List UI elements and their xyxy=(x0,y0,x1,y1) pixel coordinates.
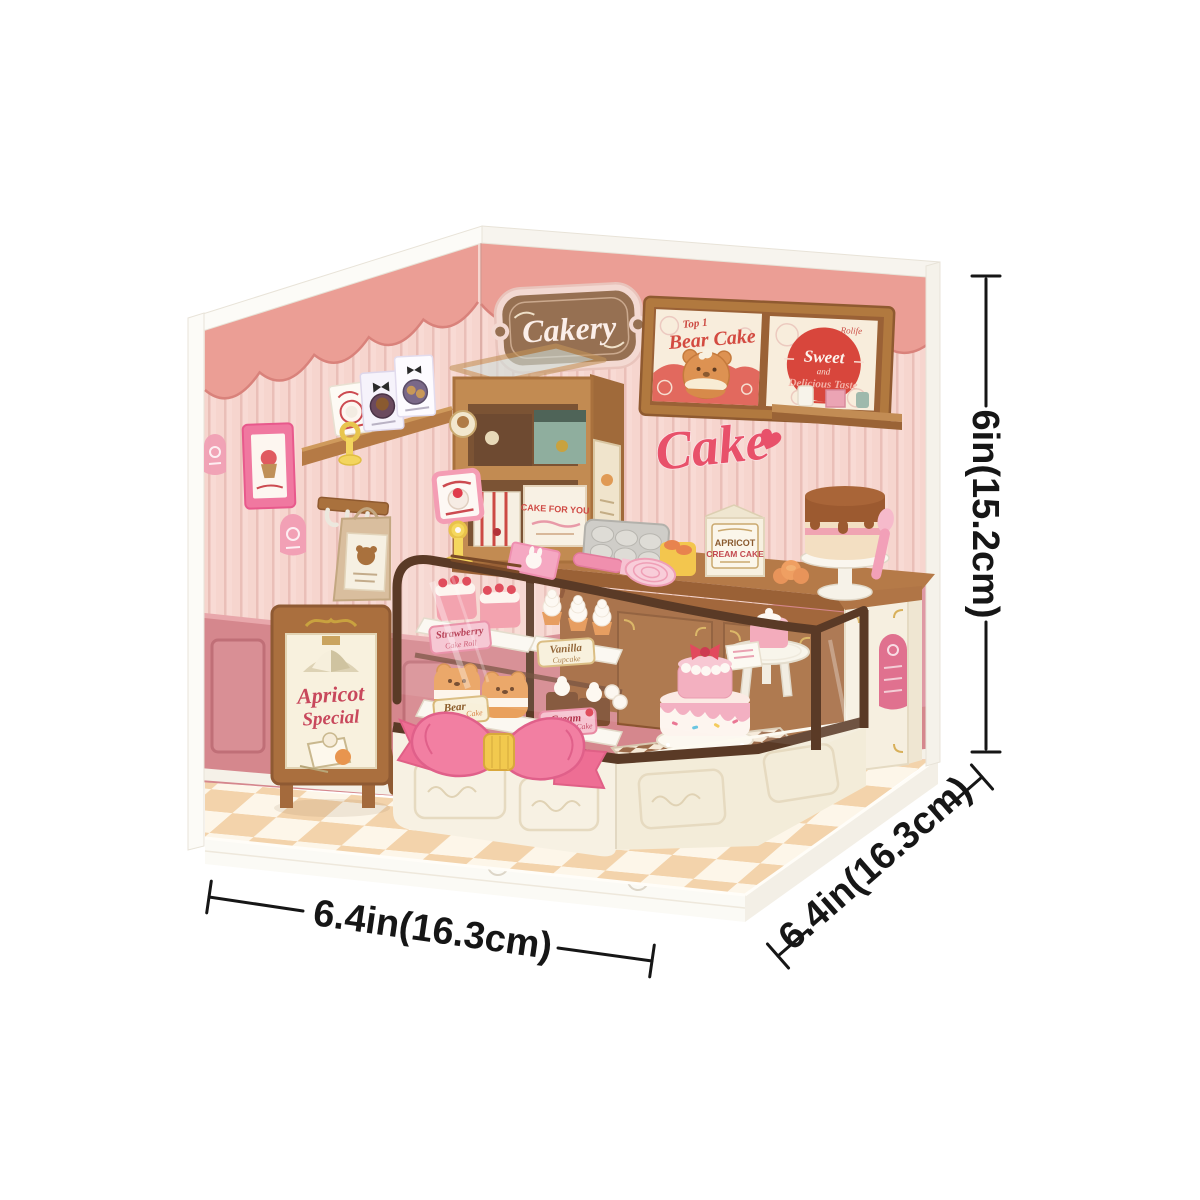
menu-decal xyxy=(879,634,907,710)
miniature-cake-shop-scene: Apricot Special Cakery xyxy=(0,0,1200,1200)
sweet-line1: Sweet xyxy=(803,347,846,368)
sweet-line2: and xyxy=(817,366,831,377)
apricot-special-sign: Apricot Special xyxy=(272,606,394,817)
poster-lightbox: Top 1 Bear Cake Rolife Sweet and Delicio… xyxy=(640,297,895,426)
cake-for-you-box: CAKE FOR YOU xyxy=(521,486,590,546)
apricot-box-line2: CREAM CAKE xyxy=(706,549,764,559)
wainscot-panel xyxy=(212,640,264,752)
chocolate-box xyxy=(474,414,532,466)
sign-line-1: Apricot xyxy=(294,680,365,709)
wall-sticker-arch xyxy=(204,434,226,475)
height-label: 6in(15.2cm) xyxy=(964,409,1006,618)
cake-text: Cake xyxy=(653,410,773,482)
wall-sticker-badge xyxy=(280,514,306,556)
recipe-card-3 xyxy=(394,355,435,417)
dimension-height: 6in(15.2cm) xyxy=(964,276,1006,752)
bear-cake-poster: Top 1 Bear Cake xyxy=(652,309,762,406)
cakery-text: Cakery xyxy=(521,309,618,350)
framed-picture xyxy=(243,423,296,509)
apricot-box-line1: APRICOT xyxy=(715,538,756,548)
front-width-label: 6.4in(16.3cm) xyxy=(311,892,555,968)
product-image-canvas: Apricot Special Cakery xyxy=(0,0,1200,1200)
paper-bag xyxy=(334,507,395,603)
apricot-cream-cake-box: APRICOT CREAM CAKE xyxy=(706,505,764,576)
sign-line-2: Special xyxy=(302,706,361,730)
